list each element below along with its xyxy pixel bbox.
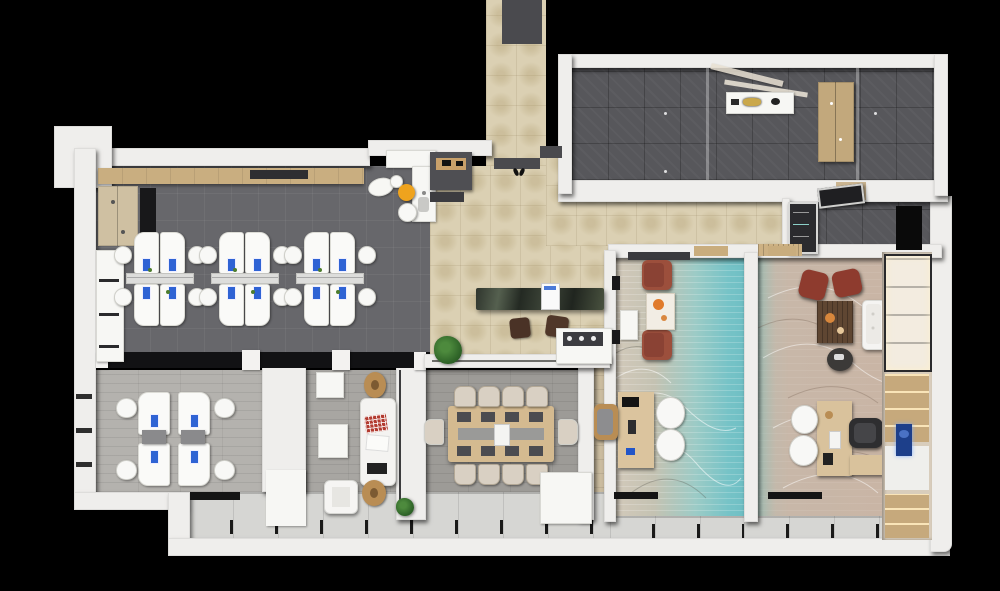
wardrobe-handle [111, 200, 115, 204]
entry-hall-wall-right [934, 54, 948, 196]
wall-media-panel [612, 276, 620, 290]
artifact [771, 98, 780, 105]
armchair-seat [644, 263, 664, 287]
table-decor [834, 354, 844, 360]
desk-plant-dot [166, 290, 170, 294]
desk-divider [211, 273, 279, 284]
partition-post [332, 350, 350, 370]
laptop [190, 450, 199, 464]
rug-circle [661, 315, 667, 321]
armchair-seat [644, 333, 664, 357]
gold-artifact [743, 98, 761, 106]
wall-media-panel [612, 330, 620, 344]
wall-window-slit [76, 394, 92, 399]
monitor-screen [544, 286, 556, 290]
wardrobe-door-seam [117, 186, 118, 246]
office-chair-white [114, 288, 132, 306]
display-shelf [726, 92, 794, 114]
conference-chair [478, 386, 500, 407]
desk-divider [142, 430, 166, 444]
conference-chair [478, 464, 500, 485]
laptop [150, 414, 159, 428]
lounge-armchair [324, 480, 358, 514]
office-chair-white [358, 246, 376, 264]
conference-chair [526, 386, 548, 407]
wall-column-block [266, 470, 306, 526]
wall-shelf [98, 168, 364, 184]
office-chair-white [214, 398, 235, 418]
hall-wardrobe [818, 82, 854, 162]
kettle [456, 161, 463, 166]
laptop [338, 258, 347, 272]
outer-wall-top-left [88, 148, 370, 166]
artifact [731, 99, 739, 105]
conference-chair [424, 419, 444, 445]
round-side-table [827, 348, 853, 371]
door-threshold [768, 492, 822, 499]
placemat [481, 412, 495, 422]
plant [434, 336, 462, 364]
manager-office-carpet [616, 258, 744, 516]
placemat [505, 446, 519, 456]
manager-office-wall-left [604, 250, 616, 522]
coffee-station [430, 152, 472, 190]
office-chair-white [284, 246, 302, 264]
tv-image [899, 430, 909, 438]
desk-plant-dot [318, 268, 322, 272]
kitchen-faucet [422, 191, 426, 195]
hall-partition-line [706, 68, 709, 180]
wardrobe-door-seam [835, 82, 836, 162]
laptop [190, 414, 199, 428]
workstation-cluster [134, 232, 184, 324]
door-threshold [614, 492, 658, 499]
printer-row [250, 170, 308, 179]
laptop [142, 286, 151, 300]
desk-keyboard [628, 420, 636, 434]
window-mullions [610, 524, 744, 538]
desk-divider [126, 273, 194, 284]
entry-hall-wall-top [558, 54, 948, 68]
yellow-stool [398, 184, 415, 201]
floor-mat [896, 206, 922, 250]
sofa-tray [367, 463, 387, 474]
kitchen-sink [418, 197, 429, 212]
cup [567, 336, 572, 341]
conference-chair [502, 386, 524, 407]
door-threshold [190, 492, 240, 500]
hanger-rail [793, 236, 809, 237]
wall-window-slit [76, 462, 92, 467]
office-chair-white [114, 246, 132, 264]
office-chair [849, 418, 883, 448]
partition-post [242, 350, 260, 370]
open-office-glass-partition [96, 352, 430, 368]
armchair-seat [332, 487, 350, 507]
door-header [628, 252, 690, 260]
art-rug [646, 293, 675, 330]
guest-chair [656, 397, 685, 429]
cabinet-slit [99, 313, 119, 316]
workstation-cluster [304, 232, 354, 324]
wardrobe-handle [121, 230, 125, 234]
guest-chair [791, 405, 818, 434]
placemat [457, 446, 471, 456]
stool-center [370, 488, 378, 498]
floor-plan-canvas [0, 0, 1000, 591]
office-chair-white [116, 460, 137, 480]
office-chair-white [214, 460, 235, 480]
stool-center [371, 380, 379, 390]
placemat [529, 412, 543, 422]
office-chair-white [284, 288, 302, 306]
desk-papers [829, 431, 841, 449]
floor-light-dot [664, 170, 667, 173]
desk-tablet [823, 453, 833, 465]
laptop [150, 450, 159, 464]
cup [591, 336, 596, 341]
kitchen-stool [398, 203, 417, 222]
table-center-console [494, 424, 510, 446]
cabinet-slit [99, 279, 119, 282]
coffee-table [817, 301, 853, 343]
outer-wall-bottom [168, 538, 950, 556]
conference-chair [558, 419, 578, 445]
table-decor [825, 313, 835, 323]
office-door-open [768, 246, 796, 256]
window-band [610, 516, 744, 540]
office-chair-seat [854, 423, 876, 443]
armchair [642, 330, 672, 360]
desk-plant-dot [233, 268, 237, 272]
conference-chair [502, 464, 524, 485]
desk-plant-dot [148, 268, 152, 272]
sliding-glass-door [399, 370, 401, 510]
conference-chair [454, 386, 476, 407]
wardrobe-cabinet [98, 186, 138, 246]
side-stool [362, 480, 386, 506]
executive-desk [817, 401, 852, 476]
espresso-machine [442, 160, 451, 166]
office-chair-white [116, 398, 137, 418]
desk-chair-seat [597, 409, 613, 435]
desk-decor [825, 411, 833, 419]
side-stool [364, 372, 386, 398]
entry-hall-wall-left [558, 54, 572, 194]
office-chair-white [358, 288, 376, 306]
placemat [481, 446, 495, 456]
cabinet-slit [99, 345, 119, 348]
conference-chair [454, 464, 476, 485]
wardrobe-handle [830, 102, 833, 105]
office-chair-white [199, 288, 217, 306]
hanger-rail [793, 212, 809, 213]
visitor-stool [509, 317, 531, 339]
wardrobe-handle [839, 138, 842, 141]
white-pillow [365, 434, 389, 452]
placemat [505, 412, 519, 422]
office-door-open [694, 246, 728, 256]
hanger-rail [793, 224, 809, 225]
desk-phone [626, 448, 635, 455]
credenza [540, 472, 592, 524]
desk-monitor [622, 397, 639, 407]
coffee-cabinet [556, 328, 612, 364]
desk-return [850, 455, 883, 475]
desk-plant-dot [251, 290, 255, 294]
laptop [312, 286, 321, 300]
coffee-station-shelf [430, 192, 464, 202]
sofa-cushion [866, 304, 881, 344]
entry-mat-small [540, 146, 562, 158]
carpet-contour-lines [616, 258, 744, 516]
placemat [457, 412, 471, 422]
guest-chair [789, 435, 818, 466]
hall-partition-line [856, 68, 859, 180]
manager-desk [618, 392, 654, 468]
office-chair-white [199, 246, 217, 264]
display-case [884, 254, 932, 372]
floor-light-dot [664, 112, 667, 115]
shelving-wall [882, 252, 932, 540]
lounge-conference-wall [396, 360, 426, 520]
office-divider-wall [744, 252, 758, 522]
floor-light-dot [874, 112, 877, 115]
desk-plant-dot [336, 290, 340, 294]
desk-divider [181, 430, 205, 444]
lounge-sofa [360, 398, 396, 486]
lounge-coffee-table [318, 424, 348, 458]
entry-mat-top [502, 0, 542, 44]
workstation-cluster [219, 232, 269, 324]
entry-mat [494, 158, 540, 169]
placemat [529, 446, 543, 456]
reception-counter [476, 288, 604, 310]
armchair [642, 260, 672, 290]
laptop [168, 258, 177, 272]
checkered-pillow [364, 414, 388, 434]
team-workstation-cluster [138, 392, 210, 484]
desk-divider [296, 273, 364, 284]
wall-window-slit [76, 428, 92, 433]
wood-drawers [885, 494, 929, 538]
laptop [227, 286, 236, 300]
console-table [620, 310, 638, 340]
cup [579, 336, 584, 341]
rug-circle [653, 299, 664, 310]
outer-wall-left [74, 148, 96, 508]
desk-chair [594, 404, 618, 440]
storage-cabinet-column [96, 250, 124, 362]
guest-chair [656, 429, 685, 461]
entry-hall-wall-bottom [558, 180, 948, 202]
counter-monitor [541, 283, 560, 310]
laptop [253, 258, 262, 272]
table-decor [837, 327, 844, 334]
square-table [316, 372, 344, 398]
tv-panel [896, 424, 912, 456]
plant [396, 498, 414, 516]
